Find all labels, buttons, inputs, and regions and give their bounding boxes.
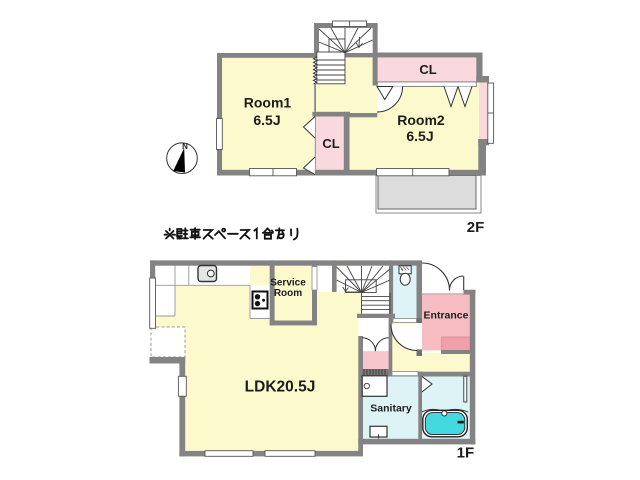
svg-text:1F: 1F [457,444,475,461]
svg-text:Service: Service [270,278,306,289]
svg-text:Sanitary: Sanitary [370,403,412,415]
svg-text:Room1: Room1 [244,95,292,111]
svg-text:LDK20.5J: LDK20.5J [245,379,316,396]
svg-text:N: N [182,142,188,151]
svg-text:CL: CL [322,136,339,151]
svg-text:Entrance: Entrance [424,309,469,321]
svg-text:CL: CL [419,62,436,77]
svg-text:Room2: Room2 [397,112,445,128]
svg-text:6.5J: 6.5J [406,128,433,144]
svg-text:Room: Room [274,288,302,299]
svg-text:6.5J: 6.5J [253,112,280,128]
svg-text:2F: 2F [467,219,485,236]
